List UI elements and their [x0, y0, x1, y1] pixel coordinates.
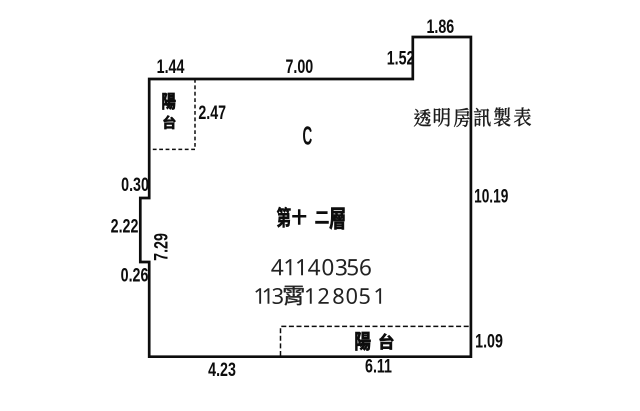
svg-text:C: C: [303, 122, 313, 151]
svg-text:1.52: 1.52: [387, 47, 415, 68]
svg-text:7.29: 7.29: [151, 233, 172, 261]
svg-text:1.86: 1.86: [426, 16, 454, 37]
svg-text:4.23: 4.23: [208, 359, 236, 380]
svg-text:1.09: 1.09: [475, 331, 503, 352]
svg-text:10.19: 10.19: [474, 185, 508, 207]
svg-text:7.00: 7.00: [285, 56, 313, 77]
svg-text:2.22: 2.22: [111, 216, 139, 237]
svg-text:1.44: 1.44: [157, 56, 185, 77]
svg-text:0.26: 0.26: [121, 265, 149, 286]
svg-text:0.30: 0.30: [121, 174, 149, 195]
svg-text:6.11: 6.11: [365, 356, 392, 377]
svg-text:2.47: 2.47: [198, 102, 226, 123]
